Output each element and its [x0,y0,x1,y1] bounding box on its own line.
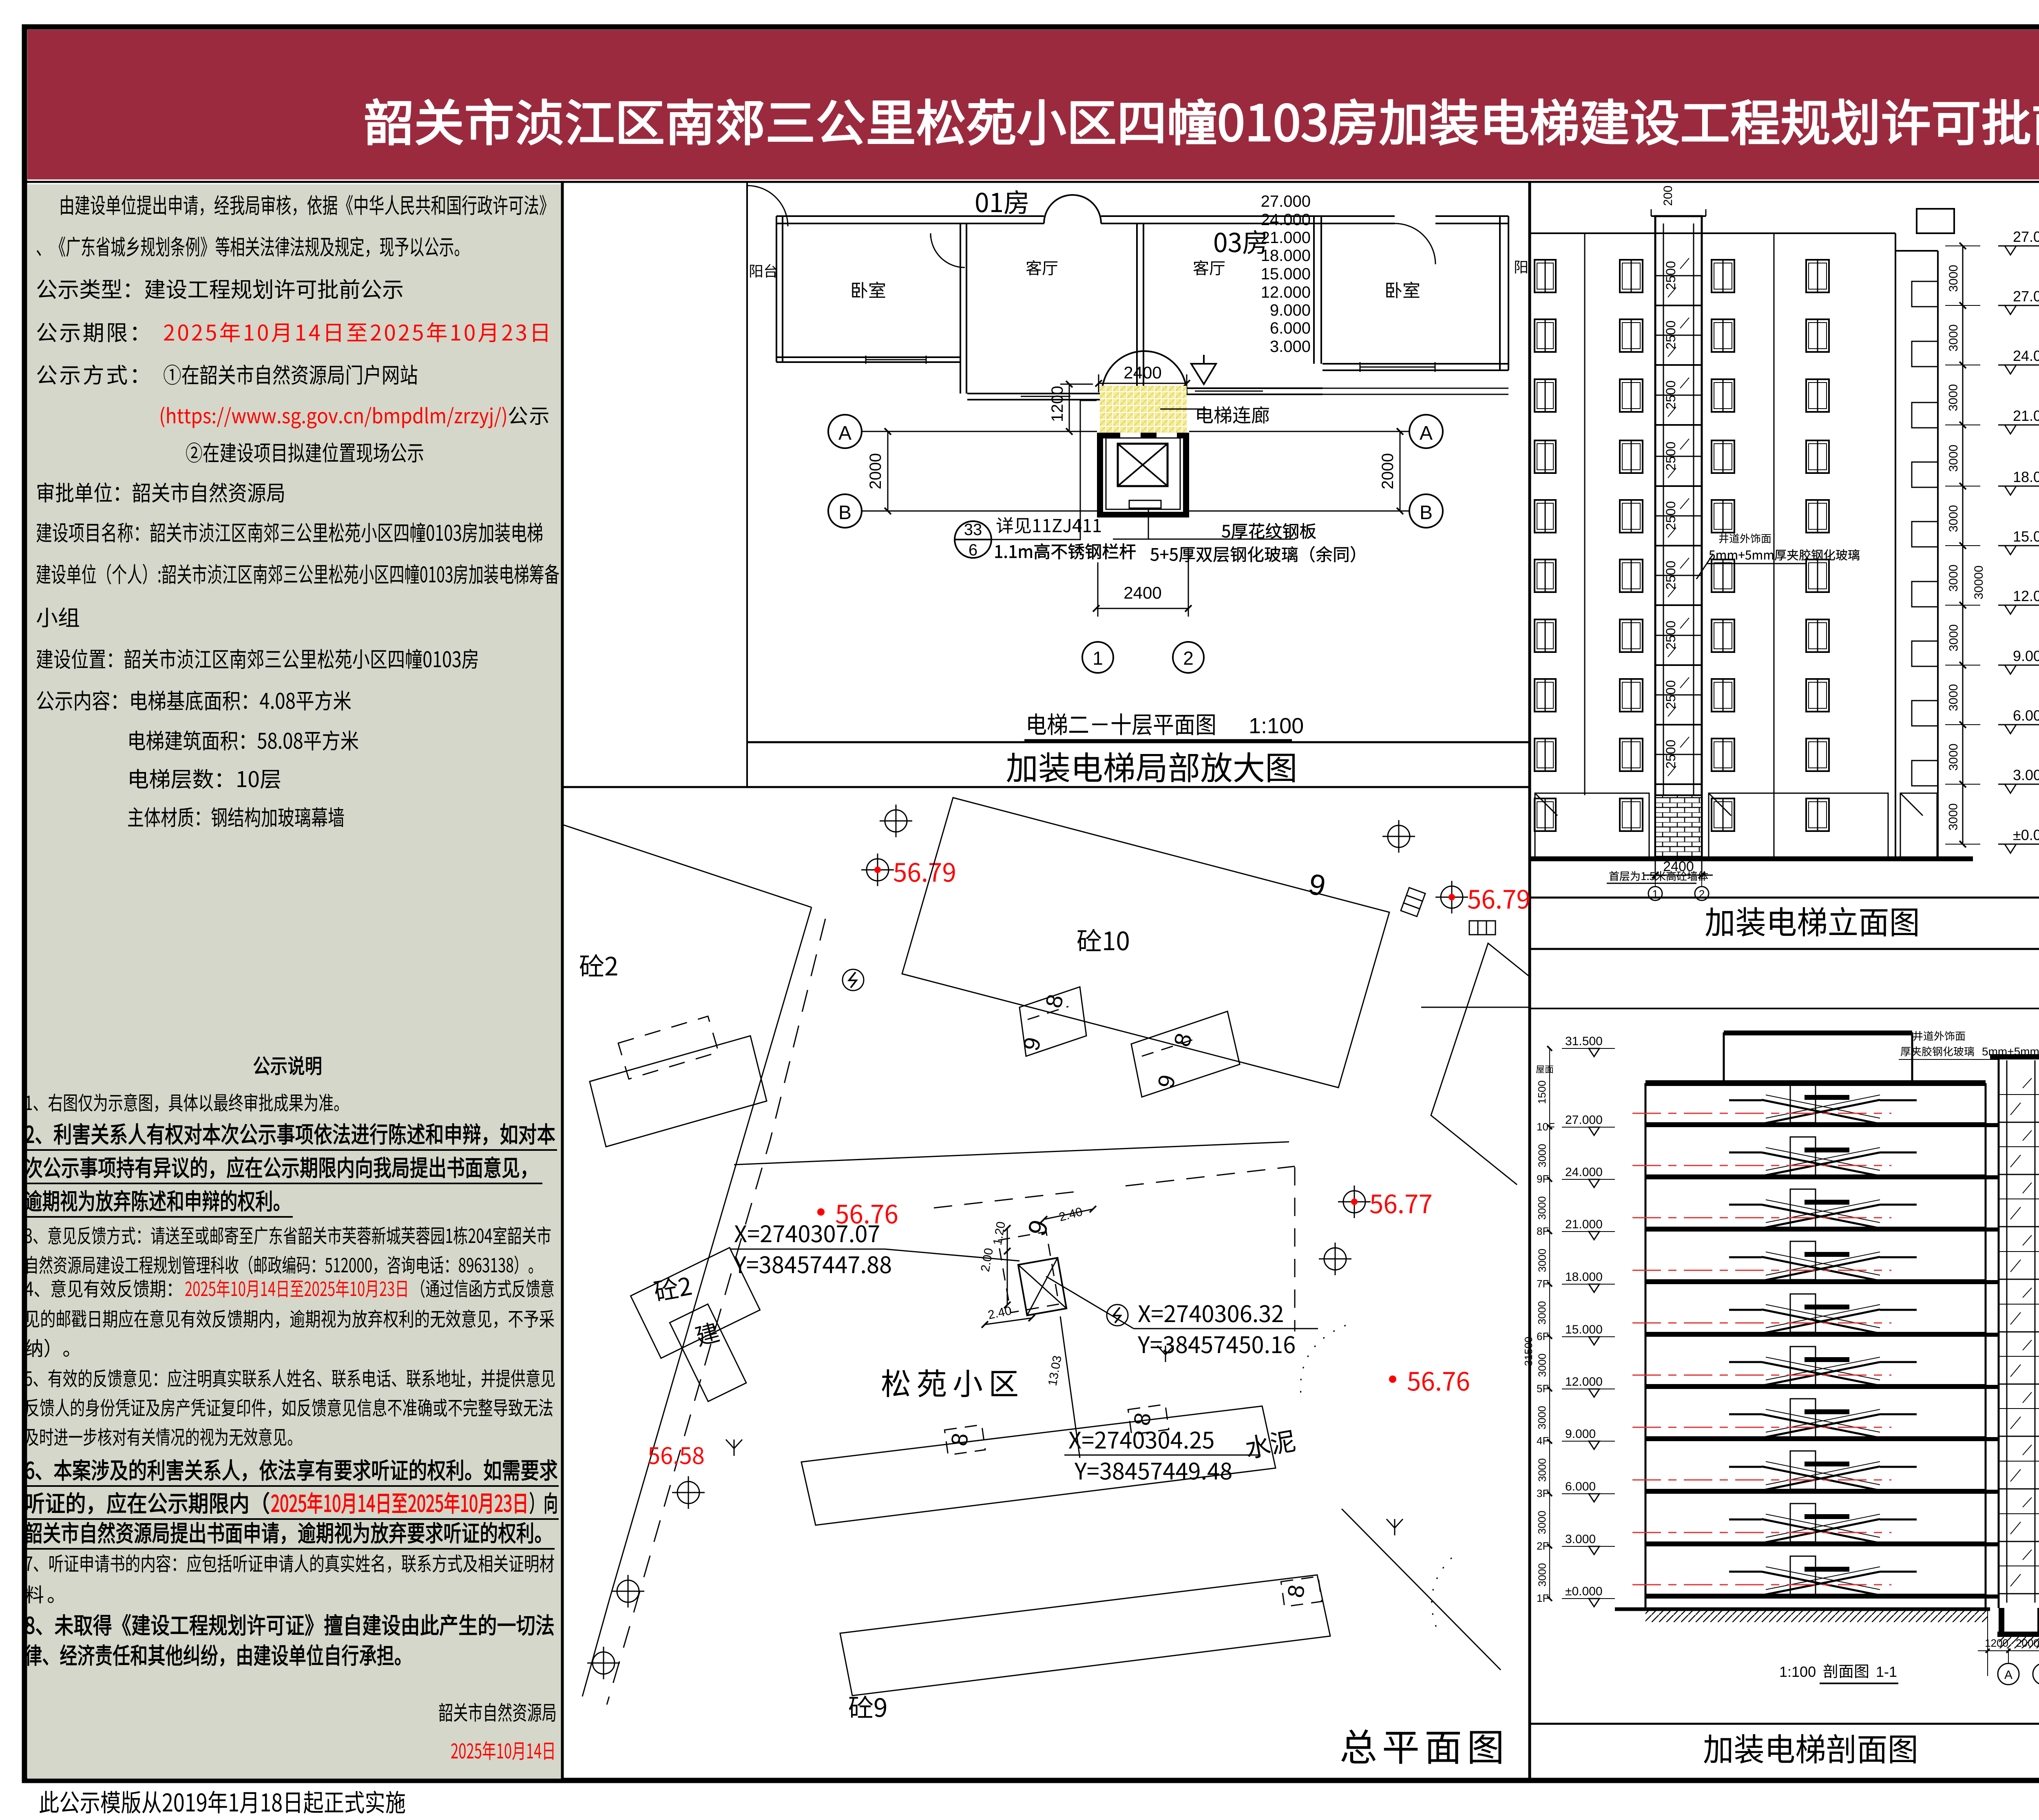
svg-text:2500: 2500 [1663,501,1678,530]
svg-text:2500: 2500 [1663,261,1678,290]
svg-text:12.000: 12.000 [2013,588,2039,604]
svg-text:2: 2 [1183,648,1194,669]
svg-text:2500: 2500 [1663,561,1678,590]
svg-text:A: A [838,422,851,444]
svg-text:3000: 3000 [1536,1406,1548,1429]
svg-text:27.000: 27.000 [1565,1113,1603,1127]
svg-text:18.000: 18.000 [1261,247,1311,265]
svg-text:27.000: 27.000 [1261,192,1311,210]
svg-text:9.000: 9.000 [1270,301,1311,319]
svg-text:2F: 2F [1537,1540,1549,1552]
svg-text:15.000: 15.000 [1565,1323,1603,1336]
svg-text:2500: 2500 [1663,680,1678,709]
svg-text:±0.000: ±0.000 [2013,827,2039,843]
svg-text:3.000: 3.000 [2013,767,2039,783]
svg-text:3000: 3000 [1536,1563,1548,1587]
svg-text:24.000: 24.000 [1261,211,1311,229]
svg-text:3000: 3000 [1536,1249,1548,1272]
svg-text:12.000: 12.000 [1565,1375,1603,1389]
svg-text:15.000: 15.000 [1261,265,1311,283]
svg-text:2000: 2000 [1379,453,1397,489]
svg-text:21.000: 21.000 [1565,1218,1603,1231]
svg-text:12.000: 12.000 [1261,283,1311,301]
svg-text:A: A [2004,1668,2012,1682]
svg-text:3F: 3F [1537,1487,1549,1499]
svg-text:2000: 2000 [2016,1637,2039,1649]
svg-text:4F: 4F [1537,1435,1549,1447]
svg-text:18.000: 18.000 [1565,1270,1603,1284]
svg-text:27.000: 27.000 [2013,228,2039,245]
svg-text:1: 1 [1092,648,1103,669]
svg-text:3.000: 3.000 [1270,338,1311,356]
svg-text:3000: 3000 [1947,684,1960,711]
svg-text:9.000: 9.000 [1565,1427,1596,1441]
svg-text:1200: 1200 [1985,1637,2008,1649]
svg-text:7F: 7F [1537,1278,1549,1290]
svg-text:3000: 3000 [1536,1510,1548,1534]
svg-text:1:100: 1:100 [1249,714,1304,738]
svg-text:6: 6 [969,541,977,559]
svg-text:2500: 2500 [1663,321,1678,349]
svg-text:2400: 2400 [1123,363,1161,382]
svg-text:1F: 1F [1537,1592,1549,1604]
svg-text:3000: 3000 [1536,1458,1548,1482]
svg-text:8F: 8F [1537,1225,1549,1237]
svg-text:3000: 3000 [1536,1301,1548,1325]
svg-text:1500: 1500 [1536,1080,1548,1104]
svg-text:2400: 2400 [1663,859,1694,874]
svg-text:30000: 30000 [1972,566,1986,599]
svg-text:33: 33 [964,521,982,539]
svg-text:24.000: 24.000 [2013,347,2039,364]
svg-text:2500: 2500 [1663,380,1678,409]
svg-text:1-1: 1-1 [1876,1663,1897,1680]
svg-text:9F: 9F [1537,1173,1549,1185]
svg-text:31500: 31500 [1522,1337,1535,1366]
svg-text:B: B [1420,502,1433,524]
svg-text:3000: 3000 [1947,624,1961,652]
svg-text:2400: 2400 [1123,583,1161,602]
svg-text:15.000: 15.000 [2013,528,2039,545]
svg-text:3000: 3000 [1947,564,1960,592]
svg-text:6.000: 6.000 [1565,1480,1596,1493]
svg-text:±0.000: ±0.000 [1565,1585,1603,1598]
svg-text:2500: 2500 [1663,442,1678,471]
svg-text:3000: 3000 [1947,743,1960,771]
svg-text:3000: 3000 [1947,324,1960,352]
svg-text:3000: 3000 [1536,1196,1548,1220]
svg-text:B: B [838,502,851,524]
svg-text:3000: 3000 [1947,444,1960,472]
svg-text:21.000: 21.000 [2013,407,2039,424]
svg-text:2500: 2500 [1663,621,1678,650]
svg-text:2500: 2500 [1663,740,1678,769]
svg-text:27.000: 27.000 [2013,288,2039,305]
svg-text:200: 200 [1661,186,1675,206]
svg-text:5mm+5mm: 5mm+5mm [1982,1045,2039,1058]
svg-text:21.000: 21.000 [1261,229,1311,247]
svg-text:24.000: 24.000 [1565,1165,1603,1179]
svg-text:1200: 1200 [1048,386,1066,422]
svg-text:6.000: 6.000 [1270,319,1311,337]
svg-text:3000: 3000 [1536,1144,1548,1168]
svg-text:3000: 3000 [1947,803,1960,831]
svg-text:A: A [1420,422,1433,444]
svg-text:31.500: 31.500 [1565,1035,1603,1048]
svg-text:3000: 3000 [1947,384,1960,411]
svg-text:2000: 2000 [867,453,885,489]
svg-text:6.000: 6.000 [2013,707,2039,724]
svg-text:3000: 3000 [1947,505,1960,532]
svg-text:3.000: 3.000 [1565,1533,1596,1546]
svg-text:3000: 3000 [1536,1353,1548,1377]
svg-text:18.000: 18.000 [2013,469,2039,485]
svg-text:10F: 10F [1537,1121,1555,1133]
svg-text:9.000: 9.000 [2013,648,2039,664]
svg-text:5F: 5F [1537,1382,1549,1395]
svg-text:3000: 3000 [1947,265,1960,292]
svg-text:1:100: 1:100 [1779,1663,1816,1680]
svg-text:6F: 6F [1537,1330,1549,1342]
